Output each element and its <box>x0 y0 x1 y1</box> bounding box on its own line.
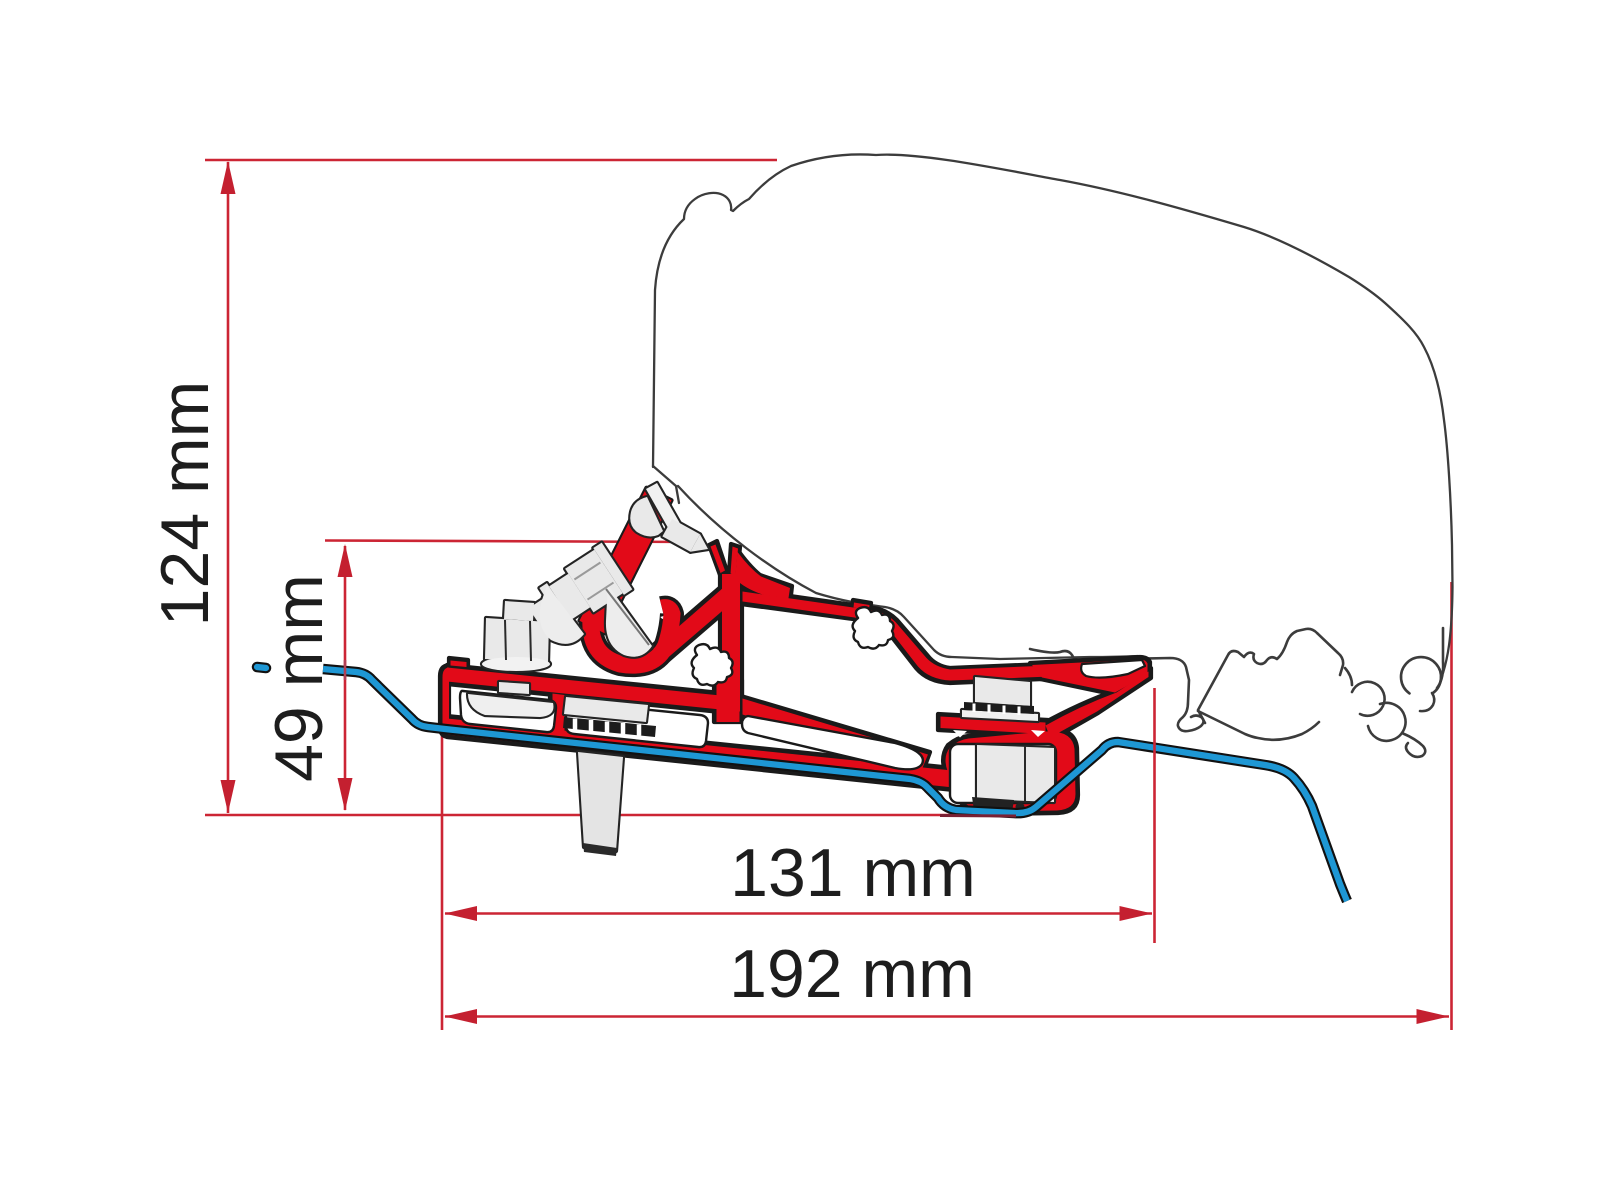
svg-text:192 mm: 192 mm <box>729 936 975 1012</box>
svg-text:49 mm: 49 mm <box>261 574 337 782</box>
svg-text:131 mm: 131 mm <box>730 835 976 911</box>
svg-text:124 mm: 124 mm <box>147 381 223 627</box>
